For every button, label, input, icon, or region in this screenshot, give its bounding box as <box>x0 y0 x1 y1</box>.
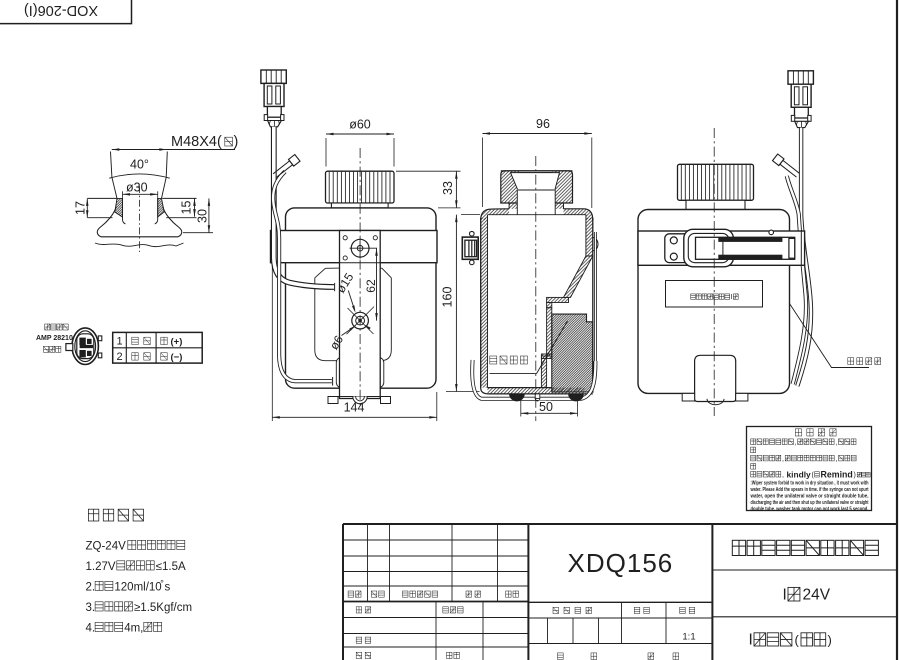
svg-text:discharging the air and then s: discharging the air and then shut up the… <box>751 500 869 506</box>
svg-text:120ml/10: 120ml/10 <box>114 582 161 594</box>
svg-text:≤1.5A: ≤1.5A <box>156 561 186 573</box>
svg-text:4.: 4. <box>86 623 96 635</box>
svg-text:4m,: 4m, <box>124 623 143 635</box>
svg-text:40°: 40° <box>130 158 149 172</box>
svg-text:M48X4(: M48X4( <box>171 134 222 150</box>
svg-text:double tube. washer tank mo: double tube. washer tank motor can not w… <box>751 507 869 513</box>
svg-text:(−): (−) <box>171 352 183 363</box>
svg-text:s: s <box>165 582 171 594</box>
svg-text:): ) <box>234 134 239 150</box>
svg-text:96: 96 <box>536 117 550 131</box>
svg-text:160: 160 <box>441 287 455 308</box>
svg-text:144: 144 <box>344 401 365 415</box>
svg-text::Wiper system forbid to work: :Wiper system forbid to work in dry situ… <box>751 481 869 487</box>
svg-text:33: 33 <box>441 181 455 195</box>
svg-text:1.27V: 1.27V <box>86 561 116 573</box>
svg-text:3.: 3. <box>86 602 96 614</box>
svg-text:ø60: ø60 <box>349 118 371 132</box>
svg-text:I: I <box>731 294 733 301</box>
svg-text:I: I <box>749 632 753 649</box>
svg-text:): ) <box>854 472 856 479</box>
svg-text:ø30: ø30 <box>126 181 148 195</box>
svg-text:I: I <box>783 587 787 604</box>
svg-text:24V: 24V <box>803 587 831 604</box>
svg-text:15: 15 <box>180 201 194 215</box>
svg-text:): ) <box>828 633 832 648</box>
svg-text:XOD-206(I): XOD-206(I) <box>24 2 98 18</box>
svg-text:62: 62 <box>364 279 378 293</box>
svg-text:water, open the unilateral: water, open the unilateral valve or stra… <box>750 494 869 500</box>
svg-text:,: , <box>795 440 797 447</box>
svg-text:50: 50 <box>539 400 553 414</box>
svg-text:,: , <box>835 440 837 447</box>
svg-text:(+): (+) <box>171 336 183 347</box>
svg-text:water. Please Add the spears i: water. Please Add the spears in time. if… <box>750 487 869 493</box>
svg-text:(: ( <box>795 633 800 648</box>
svg-text:Remind: Remind <box>821 470 853 480</box>
svg-text:1:1: 1:1 <box>682 632 695 643</box>
svg-text:2.: 2. <box>86 582 96 594</box>
svg-text:2: 2 <box>116 351 122 363</box>
svg-text:1: 1 <box>116 335 122 347</box>
svg-text:XDQ156: XDQ156 <box>568 548 674 578</box>
svg-text:,: , <box>835 456 837 463</box>
svg-text:ZQ-24V: ZQ-24V <box>86 541 127 553</box>
svg-text:30: 30 <box>196 209 210 223</box>
svg-text:≥1.5Kgf/cm: ≥1.5Kgf/cm <box>134 602 192 614</box>
svg-text:kindly: kindly <box>787 470 812 480</box>
svg-text:17: 17 <box>74 201 88 215</box>
svg-text:,: , <box>782 472 784 479</box>
svg-text:,: , <box>782 456 784 463</box>
